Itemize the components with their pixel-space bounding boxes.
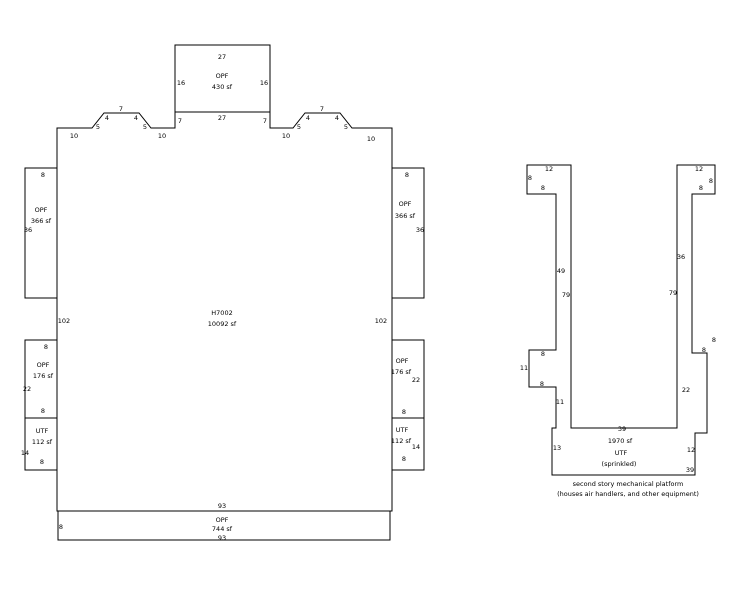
dim-label: 22: [682, 387, 690, 394]
area-label: 366 sf: [31, 218, 51, 225]
dim-label: 93: [218, 503, 226, 510]
dim-label: 7: [178, 118, 182, 125]
dim-label: 8: [699, 185, 703, 192]
dim-label: 7: [119, 106, 123, 113]
room-label: OPF: [35, 207, 48, 214]
dim-label: 4: [134, 115, 138, 122]
area-label: 366 sf: [395, 213, 415, 220]
dim-label: 10: [70, 133, 78, 140]
dim-label: 8: [541, 351, 545, 358]
area-label: 744 sf: [212, 526, 232, 533]
dim-label: 10: [367, 136, 375, 143]
dim-label: 7: [320, 106, 324, 113]
dim-label: 14: [21, 450, 29, 457]
area-label: 10092 sf: [208, 321, 236, 328]
dim-label: 12: [695, 166, 703, 173]
room-label: UTF: [615, 450, 627, 457]
dim-label: 5: [344, 124, 348, 131]
dim-label: 36: [416, 227, 424, 234]
caption-line: second story mechanical platform: [573, 481, 684, 488]
room-label: OPF: [216, 73, 229, 80]
dim-label: 27: [218, 115, 226, 122]
dim-label: 8: [528, 175, 532, 182]
dim-label: 8: [41, 408, 45, 415]
note-label: (sprinkled): [602, 461, 637, 468]
area-label: 176 sf: [33, 373, 53, 380]
dim-label: 8: [709, 178, 713, 185]
dim-label: 8: [702, 347, 706, 354]
dim-label: 79: [669, 290, 677, 297]
dim-label: 8: [59, 524, 63, 531]
plan-drawing: [0, 0, 746, 595]
room-label: OPF: [37, 362, 50, 369]
dim-label: 5: [297, 124, 301, 131]
room-label: OPF: [216, 517, 229, 524]
area-label: 112 sf: [391, 438, 411, 445]
dim-label: 13: [553, 445, 561, 452]
dim-label: 8: [402, 409, 406, 416]
dim-label: 49: [557, 268, 565, 275]
area-label: 1970 sf: [608, 438, 632, 445]
dim-label: 102: [375, 318, 387, 325]
area-label: 176 sf: [391, 369, 411, 376]
caption-line: (houses air handlers, and other equipmen…: [557, 491, 699, 498]
dim-label: 11: [556, 399, 564, 406]
dim-label: 8: [541, 185, 545, 192]
dim-label: 12: [545, 166, 553, 173]
dim-label: 4: [306, 115, 310, 122]
dim-label: 10: [158, 133, 166, 140]
room-label: OPF: [399, 201, 412, 208]
dim-label: 39: [686, 467, 694, 474]
room-label: OPF: [396, 358, 409, 365]
dim-label: 8: [712, 337, 716, 344]
dim-label: 39: [618, 426, 626, 433]
dim-label: 93: [218, 535, 226, 542]
dim-label: 12: [687, 447, 695, 454]
room-label: UTF: [36, 428, 48, 435]
dim-label: 8: [402, 456, 406, 463]
floor-plan-canvas: 271616OPF430 sf2710547451077105474510H70…: [0, 0, 746, 595]
dim-label: 11: [520, 365, 528, 372]
dim-label: 5: [96, 124, 100, 131]
dim-label: 4: [335, 115, 339, 122]
dim-label: 36: [677, 254, 685, 261]
dim-label: 4: [105, 115, 109, 122]
dim-label: 8: [44, 344, 48, 351]
area-label: 430 sf: [212, 84, 232, 91]
dim-label: 22: [412, 377, 420, 384]
dim-label: 16: [260, 80, 268, 87]
dim-label: 5: [143, 124, 147, 131]
dim-label: 36: [24, 227, 32, 234]
dim-label: 8: [40, 459, 44, 466]
dim-label: 10: [282, 133, 290, 140]
area-label: 112 sf: [32, 439, 52, 446]
dim-label: 7: [263, 118, 267, 125]
dim-label: 27: [218, 54, 226, 61]
dim-label: 14: [412, 444, 420, 451]
dim-label: 22: [23, 386, 31, 393]
dim-label: 8: [405, 172, 409, 179]
dim-label: 8: [41, 172, 45, 179]
room-label: UTF: [396, 427, 408, 434]
dim-label: 102: [58, 318, 70, 325]
dim-label: 8: [540, 381, 544, 388]
dim-label: 79: [562, 292, 570, 299]
id-label: H7002: [211, 310, 232, 317]
dim-label: 16: [177, 80, 185, 87]
